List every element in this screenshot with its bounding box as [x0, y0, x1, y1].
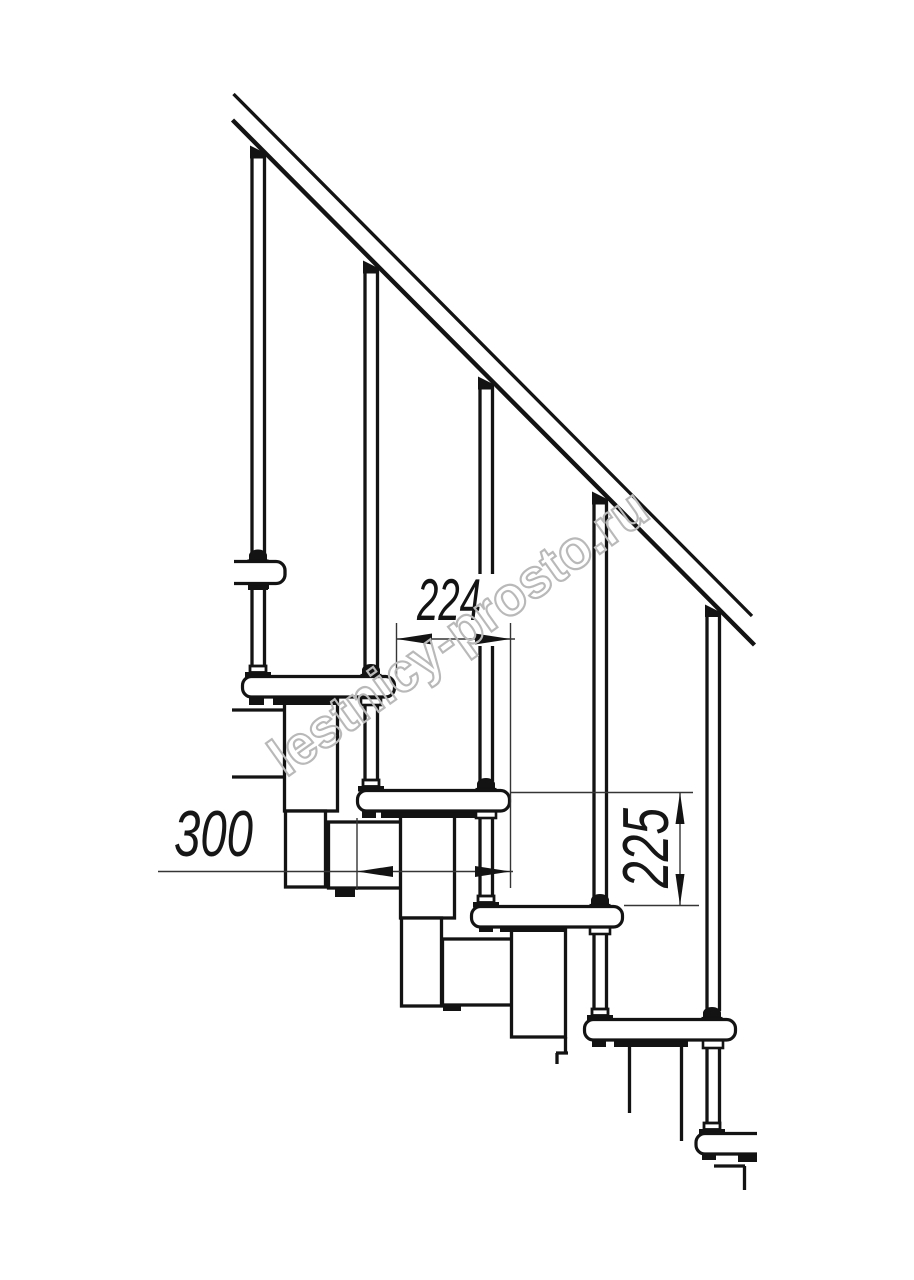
svg-text:225: 225: [609, 807, 682, 888]
svg-text:300: 300: [174, 797, 253, 870]
